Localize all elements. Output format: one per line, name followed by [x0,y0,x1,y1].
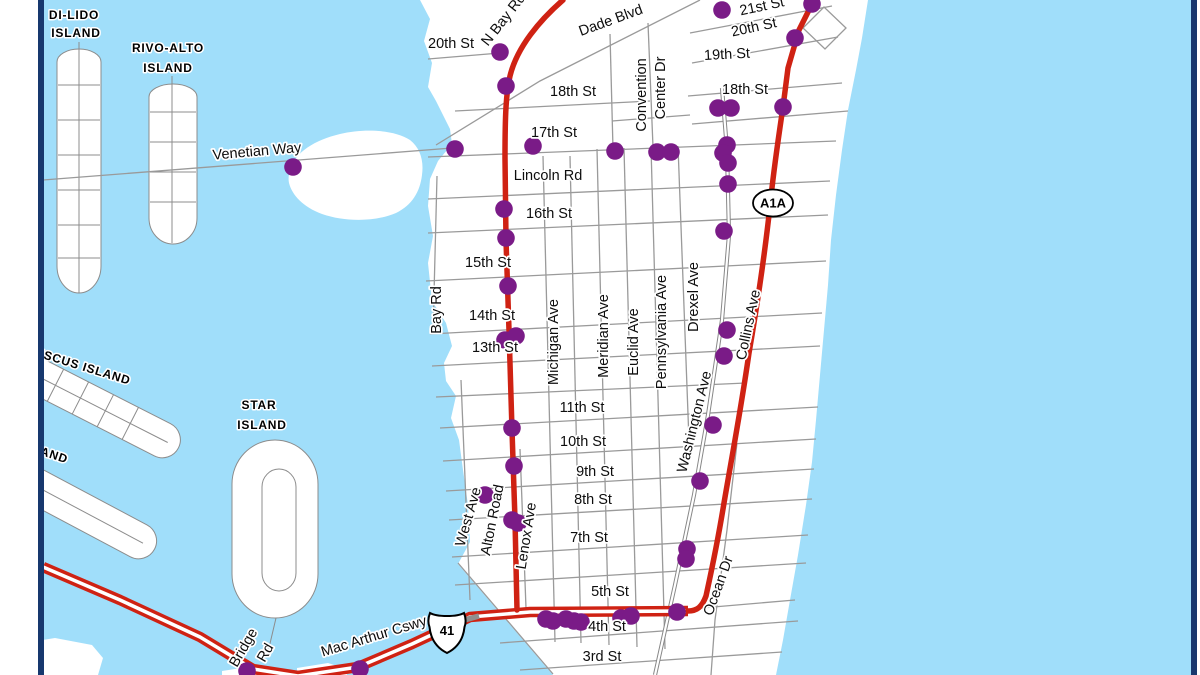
street-label: 18th St [722,82,768,98]
street-label: Euclid Ave [626,308,642,375]
transit-stop-marker[interactable] [715,222,733,240]
shield-text: 41 [440,623,454,638]
street-label: 18th St [550,84,596,100]
map-canvas: A1A41 DI-LIDOISLANDRIVO-ALTOISLANDISCUS … [0,0,1200,675]
street-label: 4th St [588,619,626,635]
transit-stop-marker[interactable] [719,175,737,193]
street-label: 15th St [465,255,511,271]
island-label: ISLAND [143,61,192,75]
street-label: 11th St [560,400,605,416]
street-label: 9th St [576,464,614,480]
transit-stop-marker[interactable] [495,200,513,218]
street-label: Pennsylvania Ave [654,275,670,389]
transit-stop-marker[interactable] [713,1,731,19]
transit-stop-marker[interactable] [491,43,509,61]
transit-stop-marker[interactable] [722,99,740,117]
transit-stop-marker[interactable] [715,347,733,365]
street-label: 16th St [526,206,572,222]
frame-left-border [38,0,44,675]
transit-stop-marker[interactable] [606,142,624,160]
transit-stop-marker[interactable] [677,550,695,568]
transit-stop-marker[interactable] [497,77,515,95]
transit-stop-marker[interactable] [691,472,709,490]
transit-stop-marker[interactable] [719,154,737,172]
map-viewport: A1A41 DI-LIDOISLANDRIVO-ALTOISLANDISCUS … [0,0,1200,675]
island-label: ISLAND [237,418,286,432]
island-label: STAR [242,398,277,412]
transit-stop-marker[interactable] [718,321,736,339]
transit-stop-marker[interactable] [497,229,515,247]
transit-stop-marker[interactable] [499,277,517,295]
transit-stop-marker[interactable] [668,603,686,621]
street-label: 13th St [472,340,518,356]
street-label: 14th St [469,308,515,324]
transit-stop-marker[interactable] [704,416,722,434]
island-label: RIVO-ALTO [132,41,204,55]
route-shield-a1a: A1A [753,190,793,217]
shield-text: A1A [760,196,787,211]
transit-stop-marker[interactable] [446,140,464,158]
street-label: Bay Rd [429,286,445,334]
street-label: Convention [634,58,650,131]
street-label: Michigan Ave [546,299,562,385]
street-label: Center Dr [653,56,669,119]
street-label: Lincoln Rd [514,168,583,184]
island-shape [232,440,318,618]
street-label: 10th St [560,434,606,450]
street-label: Drexel Ave [686,262,702,332]
transit-stop-marker[interactable] [503,419,521,437]
frame-right-border [1191,0,1197,675]
transit-stop-marker[interactable] [774,98,792,116]
island-shape [149,84,197,244]
transit-stop-marker[interactable] [505,457,523,475]
island-label: ISLAND [51,26,100,40]
street-label: 8th St [574,492,612,508]
street-label: 20th St [428,36,474,52]
street-label: 3rd St [583,649,622,665]
frame-left-margin [0,0,38,675]
street-label: 19th St [704,46,751,64]
street-label: 7th St [570,530,608,546]
transit-stop-marker[interactable] [786,29,804,47]
transit-stop-marker[interactable] [284,158,302,176]
street-label: Meridian Ave [596,294,612,378]
island-label: DI-LIDO [49,8,99,22]
transit-stop-marker[interactable] [662,143,680,161]
street-label: 5th St [591,584,629,600]
street-label: 17th St [531,125,577,141]
